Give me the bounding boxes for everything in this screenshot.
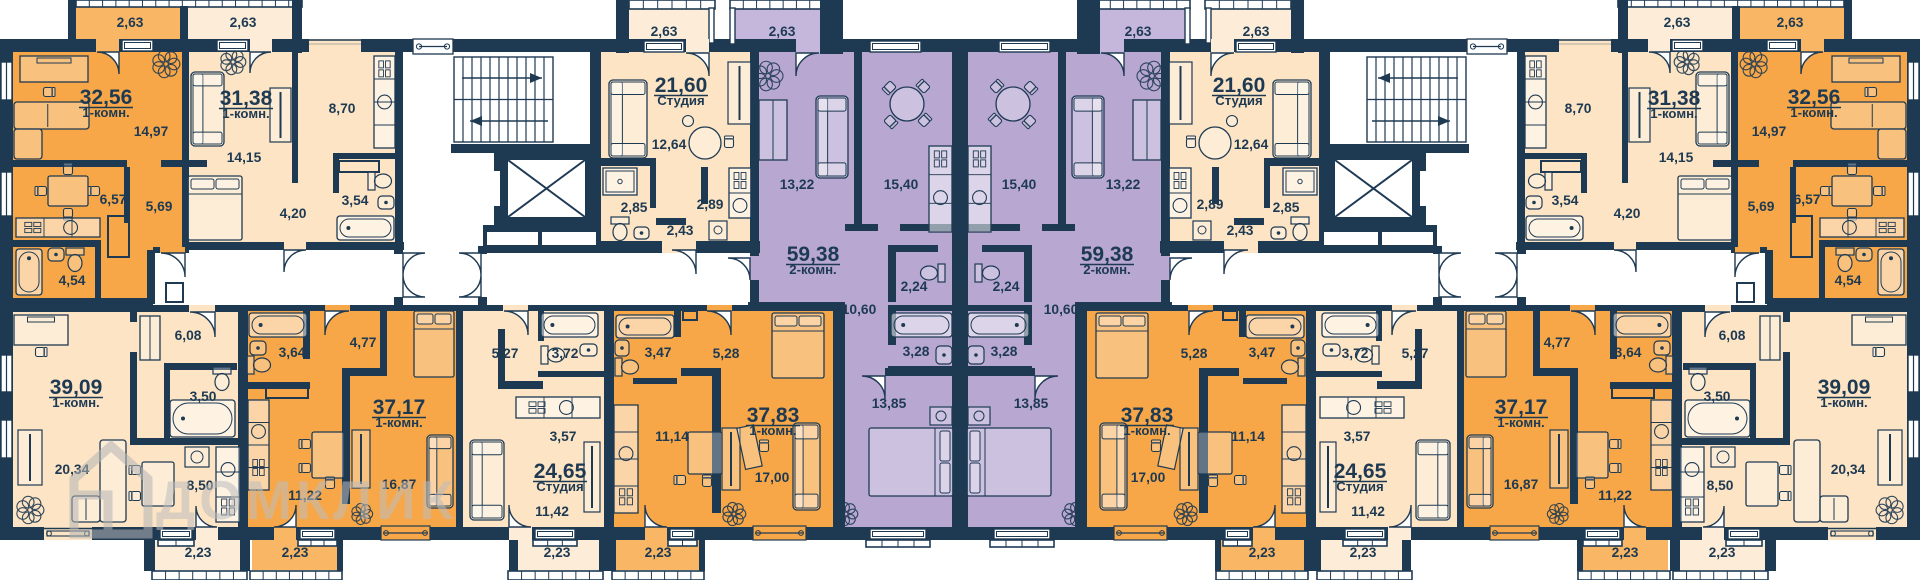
svg-text:17,00: 17,00 [1131, 470, 1166, 485]
svg-text:2,63: 2,63 [1125, 24, 1152, 39]
svg-text:5,28: 5,28 [1181, 346, 1208, 361]
svg-text:1-комн.: 1-комн. [1820, 395, 1867, 410]
svg-text:13,22: 13,22 [1106, 177, 1141, 192]
svg-text:Студия: Студия [1336, 479, 1384, 494]
svg-text:2-комн.: 2-комн. [789, 262, 836, 277]
svg-text:2,43: 2,43 [1227, 223, 1254, 238]
svg-text:3,64: 3,64 [279, 345, 306, 360]
svg-text:4,20: 4,20 [1614, 206, 1641, 221]
svg-text:6,08: 6,08 [175, 328, 202, 343]
svg-text:2,85: 2,85 [621, 200, 648, 215]
svg-text:8,70: 8,70 [329, 101, 356, 116]
svg-text:3,72: 3,72 [552, 346, 579, 361]
svg-text:Студия: Студия [1215, 93, 1263, 108]
svg-text:4,77: 4,77 [1544, 335, 1571, 350]
svg-text:14,15: 14,15 [227, 150, 262, 165]
svg-text:1-комн.: 1-комн. [1650, 106, 1697, 121]
svg-text:6,57: 6,57 [100, 192, 127, 207]
svg-text:1-комн.: 1-комн. [1123, 423, 1170, 438]
svg-text:2,23: 2,23 [645, 545, 672, 560]
svg-text:2,23: 2,23 [1249, 545, 1276, 560]
svg-text:14,97: 14,97 [1752, 124, 1787, 139]
svg-text:2,63: 2,63 [230, 15, 257, 30]
svg-text:2,23: 2,23 [282, 545, 309, 560]
svg-text:11,42: 11,42 [1351, 504, 1385, 519]
svg-text:3,28: 3,28 [991, 344, 1018, 359]
svg-text:8,50: 8,50 [1707, 478, 1734, 493]
svg-text:20,34: 20,34 [1831, 462, 1866, 477]
svg-text:11,22: 11,22 [1598, 488, 1632, 503]
svg-text:3,50: 3,50 [1704, 389, 1731, 404]
svg-text:3,57: 3,57 [550, 429, 577, 444]
svg-text:1-комн.: 1-комн. [222, 106, 269, 121]
svg-text:3,54: 3,54 [1552, 193, 1579, 208]
svg-text:8,70: 8,70 [1565, 101, 1592, 116]
svg-text:4,54: 4,54 [1835, 273, 1862, 288]
svg-text:3,64: 3,64 [1615, 345, 1642, 360]
svg-text:5,27: 5,27 [1402, 346, 1429, 361]
svg-text:14,97: 14,97 [134, 124, 169, 139]
svg-text:4,54: 4,54 [59, 273, 86, 288]
svg-text:13,85: 13,85 [1014, 396, 1049, 411]
svg-text:2,63: 2,63 [1664, 15, 1691, 30]
svg-text:5,69: 5,69 [146, 199, 173, 214]
svg-text:13,22: 13,22 [780, 177, 815, 192]
svg-text:1-комн.: 1-комн. [52, 395, 99, 410]
svg-text:11,14: 11,14 [655, 429, 689, 444]
svg-text:2-комн.: 2-комн. [1083, 262, 1130, 277]
svg-text:4,77: 4,77 [350, 335, 377, 350]
svg-text:12,64: 12,64 [652, 137, 687, 152]
svg-text:11,14: 11,14 [1231, 429, 1265, 444]
svg-text:15,40: 15,40 [884, 177, 919, 192]
svg-text:3,47: 3,47 [1249, 345, 1276, 360]
svg-text:2,63: 2,63 [769, 24, 796, 39]
svg-text:2,43: 2,43 [667, 223, 694, 238]
svg-text:17,00: 17,00 [755, 470, 790, 485]
svg-text:3,47: 3,47 [645, 345, 672, 360]
svg-text:2,23: 2,23 [1709, 545, 1736, 560]
svg-text:5,28: 5,28 [713, 346, 740, 361]
svg-text:15,40: 15,40 [1002, 177, 1037, 192]
svg-text:Студия: Студия [536, 479, 584, 494]
svg-text:5,69: 5,69 [1748, 199, 1775, 214]
svg-text:2,63: 2,63 [1777, 15, 1804, 30]
svg-text:3,57: 3,57 [1344, 429, 1371, 444]
svg-text:2,23: 2,23 [185, 545, 212, 560]
svg-text:3,28: 3,28 [903, 344, 930, 359]
svg-text:14,15: 14,15 [1659, 150, 1694, 165]
svg-text:4,20: 4,20 [280, 206, 307, 221]
svg-text:3,50: 3,50 [190, 389, 217, 404]
svg-text:6,08: 6,08 [1719, 328, 1746, 343]
svg-text:2,63: 2,63 [1243, 24, 1270, 39]
svg-text:2,23: 2,23 [544, 545, 571, 560]
svg-text:10,60: 10,60 [842, 302, 877, 317]
svg-text:12,64: 12,64 [1234, 137, 1269, 152]
svg-text:1-комн.: 1-комн. [1790, 105, 1837, 120]
svg-text:2,85: 2,85 [1273, 200, 1300, 215]
svg-text:16,87: 16,87 [1504, 477, 1539, 492]
svg-text:2,89: 2,89 [1197, 197, 1224, 212]
svg-text:2,23: 2,23 [1612, 545, 1639, 560]
svg-text:1-комн.: 1-комн. [375, 415, 422, 430]
svg-text:1-комн.: 1-комн. [82, 105, 129, 120]
svg-text:13,85: 13,85 [872, 396, 907, 411]
svg-text:2,63: 2,63 [651, 24, 678, 39]
svg-text:2,89: 2,89 [697, 197, 724, 212]
svg-text:2,24: 2,24 [901, 279, 928, 294]
svg-text:Студия: Студия [657, 93, 705, 108]
svg-text:1-комн.: 1-комн. [1497, 415, 1544, 430]
svg-text:2,24: 2,24 [993, 279, 1020, 294]
svg-text:1-комн.: 1-комн. [749, 423, 796, 438]
svg-text:2,63: 2,63 [117, 15, 144, 30]
svg-text:10,60: 10,60 [1044, 302, 1079, 317]
svg-text:6,57: 6,57 [1794, 192, 1821, 207]
svg-text:3,54: 3,54 [342, 193, 369, 208]
svg-text:ДОМКЛИК: ДОМКЛИК [156, 469, 457, 531]
svg-text:11,42: 11,42 [535, 504, 569, 519]
svg-text:5,27: 5,27 [492, 346, 519, 361]
svg-text:3,72: 3,72 [1342, 346, 1369, 361]
svg-text:2,23: 2,23 [1350, 545, 1377, 560]
